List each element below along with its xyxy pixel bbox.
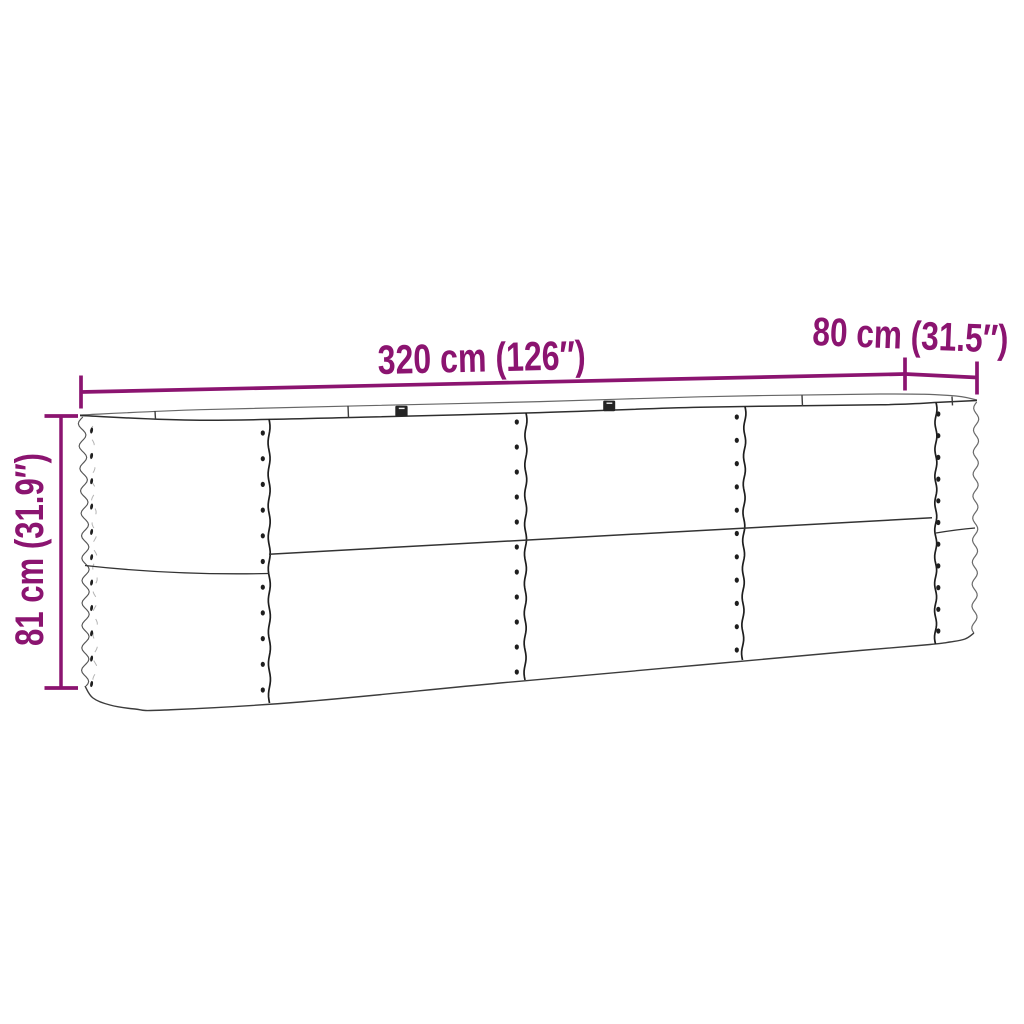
svg-text:81 cm (31.9″): 81 cm (31.9″) xyxy=(8,453,52,646)
svg-text:80 cm (31.5″): 80 cm (31.5″) xyxy=(812,310,1010,362)
svg-text:320 cm (126″): 320 cm (126″) xyxy=(377,332,586,383)
